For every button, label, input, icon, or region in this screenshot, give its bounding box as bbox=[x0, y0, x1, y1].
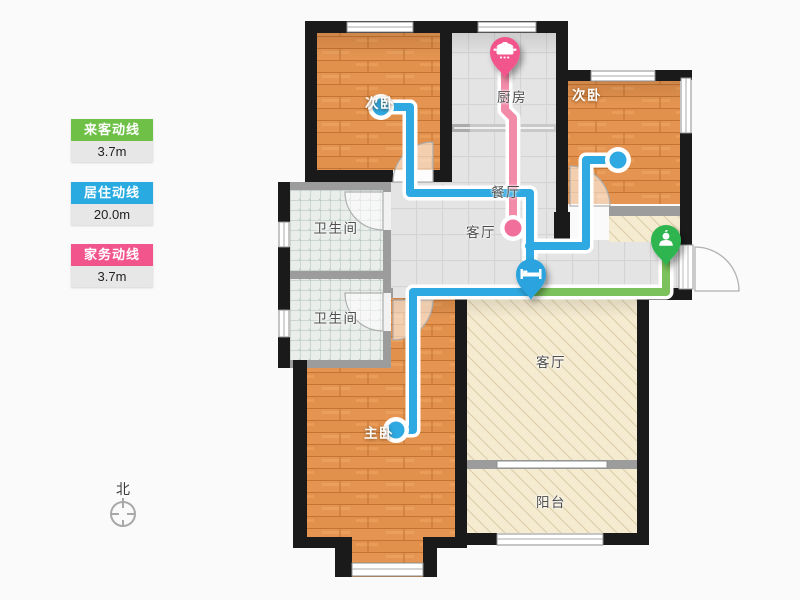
route-endpoint-dot bbox=[373, 99, 390, 116]
legend-label: 来客动线 bbox=[71, 119, 153, 141]
shade bbox=[467, 298, 637, 318]
legend-item-visitor-route[interactable]: 来客动线 3.7m bbox=[71, 119, 153, 162]
legend-item-living-route[interactable]: 居住动线 20.0m bbox=[71, 182, 153, 225]
legend-item-housework-route[interactable]: 家务动线 3.7m bbox=[71, 244, 153, 287]
compass-rose-icon bbox=[111, 498, 135, 527]
route-endpoint-dot bbox=[505, 220, 522, 237]
legend-value: 3.7m bbox=[71, 266, 153, 287]
floorplan-viewer: 次卧 厨房 次卧 餐厅 客厅 卫生间 卫生间 主卧 客厅 阳台 来客动线 3.7… bbox=[0, 0, 800, 600]
door-gap-bathroom-2 bbox=[383, 293, 391, 331]
door-entry-swing bbox=[695, 247, 739, 291]
shade bbox=[568, 81, 680, 105]
entry-door-frame bbox=[679, 245, 693, 289]
door-gap-bathroom-1 bbox=[383, 192, 391, 230]
route-endpoint-dot bbox=[610, 152, 627, 169]
floor-balcony bbox=[467, 469, 637, 533]
legend-label: 家务动线 bbox=[71, 244, 153, 266]
legend-value: 20.0m bbox=[71, 204, 153, 225]
route-endpoint-dot bbox=[388, 422, 405, 439]
kitchen-counter bbox=[452, 124, 556, 132]
shade bbox=[317, 33, 440, 59]
legend-label: 居住动线 bbox=[71, 182, 153, 204]
compass-north-label: 北 bbox=[116, 481, 130, 497]
floor-living-room bbox=[467, 298, 637, 460]
legend-value: 3.7m bbox=[71, 141, 153, 162]
compass: 北 bbox=[100, 476, 146, 538]
